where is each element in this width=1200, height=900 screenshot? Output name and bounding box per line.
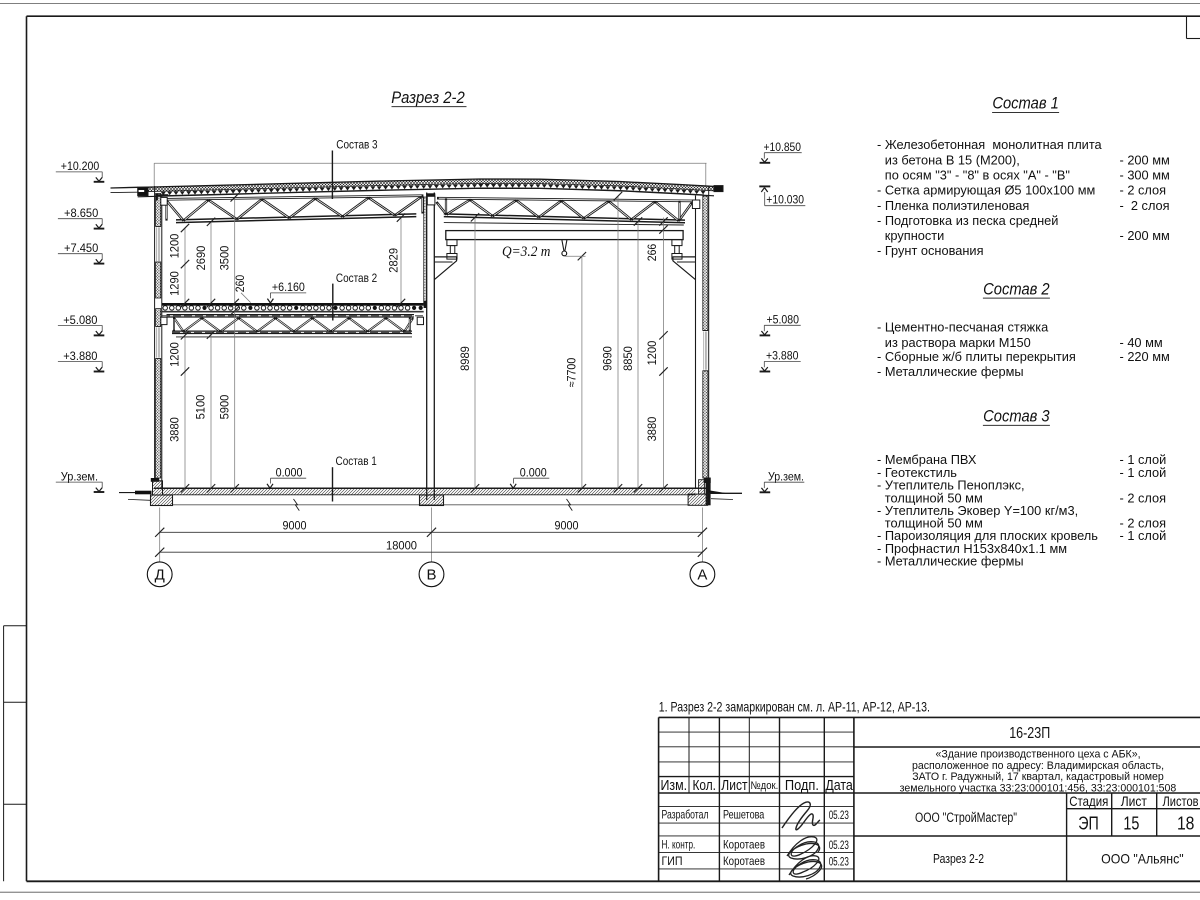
svg-text:+10.030: +10.030	[766, 193, 804, 207]
svg-text:- 300 мм: - 300 мм	[1120, 168, 1170, 183]
svg-text:2829: 2829	[388, 248, 401, 273]
svg-text:Состав 2: Состав 2	[336, 271, 377, 285]
svg-text:260: 260	[234, 274, 247, 292]
svg-text:Ур.зем.: Ур.зем.	[61, 469, 98, 483]
svg-text:Состав 2: Состав 2	[983, 279, 1050, 298]
svg-text:8850: 8850	[622, 346, 635, 371]
svg-text:из раствора марки М150: из раствора марки М150	[885, 335, 1031, 350]
svg-text:1200: 1200	[169, 342, 182, 367]
svg-text:Стадия: Стадия	[1069, 793, 1108, 809]
svg-text:№док.: №док.	[751, 780, 779, 792]
svg-text:- Металлические фермы: - Металлические фермы	[877, 554, 1024, 569]
svg-text:Подп.: Подп.	[785, 777, 819, 794]
svg-text:1200: 1200	[646, 340, 659, 365]
svg-text:+8.650: +8.650	[64, 206, 99, 220]
svg-text:+10.200: +10.200	[61, 159, 100, 173]
svg-text:крупности: крупности	[885, 228, 945, 243]
svg-text:«Здание производственного цеха: «Здание производственного цеха с АБК»,	[935, 748, 1140, 760]
svg-text:- 2 слоя: - 2 слоя	[1120, 183, 1167, 198]
svg-text:2690: 2690	[195, 245, 208, 270]
svg-text:+6.160: +6.160	[272, 281, 305, 294]
svg-text:ГИП: ГИП	[662, 854, 683, 868]
svg-text:16-23П: 16-23П	[1009, 725, 1050, 742]
svg-text:В: В	[426, 567, 436, 584]
svg-text:9000: 9000	[555, 520, 579, 533]
svg-text:3880: 3880	[169, 417, 182, 442]
svg-text:- 2 слоя: - 2 слоя	[1120, 198, 1170, 213]
svg-text:15: 15	[1123, 813, 1139, 833]
svg-text:Д: Д	[155, 567, 165, 584]
svg-text:Коротаев: Коротаев	[723, 837, 765, 851]
svg-text:- Сборные ж/б плиты перекрытия: - Сборные ж/б плиты перекрытия	[877, 349, 1076, 364]
svg-text:- Пленка полиэтиленовая: - Пленка полиэтиленовая	[877, 198, 1029, 213]
svg-text:Состав 1: Состав 1	[336, 454, 377, 468]
svg-text:≈7700: ≈7700	[565, 357, 578, 387]
svg-text:- Металлические фермы: - Металлические фермы	[877, 364, 1024, 379]
svg-text:0.000: 0.000	[520, 466, 547, 479]
svg-text:+7.450: +7.450	[64, 241, 99, 255]
svg-text:9000: 9000	[283, 520, 307, 533]
svg-text:3880: 3880	[646, 416, 659, 441]
svg-text:Изм.: Изм.	[661, 777, 688, 794]
svg-text:Разрез 2-2: Разрез 2-2	[933, 851, 984, 866]
svg-text:Состав 1: Состав 1	[992, 94, 1059, 113]
svg-text:Q=3.2 m: Q=3.2 m	[502, 244, 551, 260]
svg-text:А: А	[697, 567, 707, 584]
svg-text:- 200 мм: - 200 мм	[1120, 228, 1170, 243]
svg-text:- 1 слой: - 1 слой	[1120, 465, 1167, 480]
svg-text:ЗАТО г. Радужный, 17 квартал,: ЗАТО г. Радужный, 17 квартал, кадастровы…	[912, 771, 1164, 783]
svg-text:из бетона В 15 (М200),: из бетона В 15 (М200),	[885, 153, 1020, 168]
svg-text:1290: 1290	[169, 271, 182, 296]
svg-text:Лист: Лист	[721, 777, 747, 794]
svg-text:5100: 5100	[194, 394, 207, 419]
svg-text:- 1 слой: - 1 слой	[1120, 528, 1167, 543]
svg-text:05.23: 05.23	[829, 809, 849, 822]
svg-text:по осям "3" - "8" в осях "А" -: по осям "3" - "8" в осях "А" - "В"	[885, 168, 1070, 183]
svg-text:- Сетка армирующая Ø5 100х100: - Сетка армирующая Ø5 100х100 мм	[877, 183, 1095, 198]
svg-text:Коротаев: Коротаев	[723, 854, 765, 868]
svg-text:- 220 мм: - 220 мм	[1120, 349, 1170, 364]
svg-text:Лист: Лист	[1121, 793, 1148, 809]
svg-text:18000: 18000	[386, 540, 417, 553]
svg-text:+10.850: +10.850	[764, 140, 802, 154]
svg-text:266: 266	[646, 244, 659, 262]
svg-text:Разрез 2-2: Разрез 2-2	[391, 88, 465, 107]
svg-text:Листов: Листов	[1163, 793, 1199, 809]
svg-text:Состав 3: Состав 3	[336, 138, 377, 152]
svg-text:- 40 мм: - 40 мм	[1120, 335, 1163, 350]
svg-text:Состав 3: Состав 3	[983, 407, 1050, 426]
svg-text:+3.880: +3.880	[63, 349, 98, 363]
svg-text:расположенное по адресу: Влади: расположенное по адресу: Владимирская об…	[912, 760, 1164, 772]
svg-text:5900: 5900	[218, 394, 231, 419]
svg-text:ООО "СтройМастер": ООО "СтройМастер"	[915, 810, 1017, 825]
svg-text:0.000: 0.000	[276, 466, 303, 479]
svg-text:- Грунт основания: - Грунт основания	[877, 243, 984, 258]
svg-text:9690: 9690	[602, 346, 615, 371]
svg-text:- 200 мм: - 200 мм	[1120, 153, 1170, 168]
svg-text:Ур.зем.: Ур.зем.	[768, 470, 804, 484]
svg-text:Решетова: Решетова	[723, 808, 765, 822]
svg-text:05.23: 05.23	[829, 839, 849, 852]
svg-text:3500: 3500	[219, 245, 232, 270]
svg-text:+3.880: +3.880	[766, 349, 799, 363]
svg-text:ЭП: ЭП	[1078, 813, 1099, 833]
svg-text:- Цементно-песчаная стяжка: - Цементно-песчаная стяжка	[877, 319, 1049, 334]
svg-text:05.23: 05.23	[829, 855, 849, 868]
svg-text:1200: 1200	[169, 233, 182, 258]
svg-text:18: 18	[1177, 813, 1195, 833]
svg-text:- Железобетонная монолитная п: - Железобетонная монолитная плита	[877, 137, 1103, 152]
svg-text:8989: 8989	[459, 346, 472, 371]
svg-text:- Подготовка из песка средней: - Подготовка из песка средней	[877, 213, 1058, 228]
svg-text:ООО "Альянс": ООО "Альянс"	[1101, 850, 1184, 866]
svg-text:+5.080: +5.080	[767, 313, 800, 327]
svg-text:Дата: Дата	[825, 777, 853, 794]
svg-text:1. Разрез 2-2 замаркирован см.: 1. Разрез 2-2 замаркирован см. л. АР-11,…	[659, 699, 930, 714]
svg-text:Н. контр.: Н. контр.	[662, 837, 696, 851]
svg-text:Разработал: Разработал	[662, 808, 709, 822]
svg-text:- 2 слоя: - 2 слоя	[1120, 491, 1167, 506]
svg-text:Кол.: Кол.	[692, 777, 716, 794]
svg-text:+5.080: +5.080	[63, 313, 98, 327]
